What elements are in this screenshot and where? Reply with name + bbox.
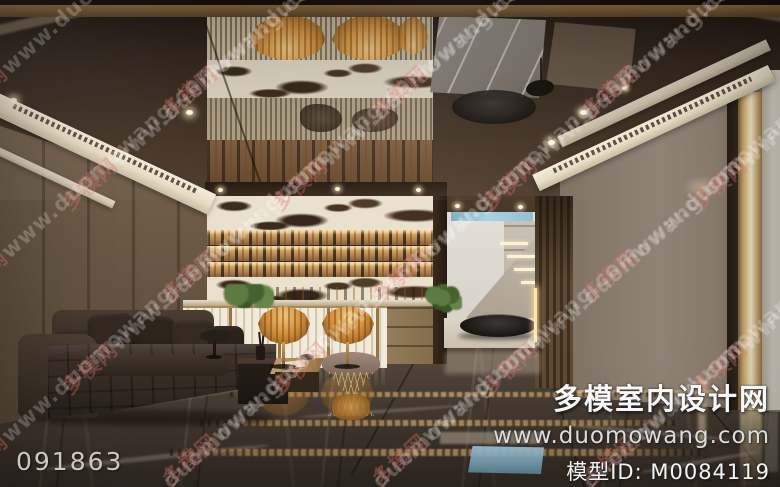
stair-step-light (507, 255, 535, 258)
ceiling-reflection-wall-patch (546, 22, 636, 92)
soffit-downlight (416, 188, 421, 192)
opening-soffit (447, 196, 537, 213)
recessed-spotlight (10, 98, 17, 103)
bar-cabinet (387, 306, 433, 364)
stair-step-light (500, 242, 528, 245)
gold-coffee-table-base (275, 372, 319, 392)
watermark-corner: 多模室内设计网 www.duomowang.com 模型ID: M0084119 (493, 376, 770, 486)
watermark-site-url: www.duomowang.com (493, 423, 770, 449)
watermark-site-name: 多模室内设计网 (493, 376, 770, 418)
soffit-downlight (218, 188, 223, 192)
recessed-spotlight (580, 110, 587, 115)
opening-plant (434, 286, 462, 316)
counter-plant (220, 284, 274, 308)
bar-marble-backsplash-upper (207, 196, 433, 230)
staircase-clerestory-window (451, 212, 533, 221)
recessed-spotlight (622, 86, 627, 90)
ceiling-reflection-decor (300, 104, 342, 132)
ceiling-reflection-black-bowl (452, 90, 536, 124)
bar-bottle-shelf (207, 230, 433, 247)
wall-wash-glow (682, 176, 722, 198)
watermark-photo-id: 091863 (16, 447, 123, 476)
opening-downlight (455, 204, 460, 208)
ceiling-reflection-pendant-rod (540, 58, 542, 84)
bar-bottle-shelf (207, 246, 433, 263)
wire-stool-amber-fill (332, 394, 370, 420)
recessed-spotlight (186, 110, 193, 115)
recessed-spotlight (548, 140, 555, 145)
ceiling-reflection-marble-band (207, 60, 433, 98)
side-table-stem (213, 341, 216, 356)
ceiling-bronze-trim (0, 5, 780, 17)
floor-opening-glow (445, 352, 541, 374)
small-bowl-on-table (300, 354, 314, 360)
ceiling-reflection-bottle-shelves (207, 140, 433, 184)
black-decor-bowl (460, 314, 536, 337)
side-table-base (206, 355, 222, 359)
interior-render-photo: 多模网www.duomowang.com多模网www.duomowang.com… (0, 0, 780, 487)
white-column (762, 70, 780, 410)
bar-stool-foot (334, 364, 360, 369)
backlit-gold-column (738, 92, 762, 410)
opening-downlight (518, 205, 523, 209)
edge-light-strip (534, 288, 537, 342)
watermark-model-id: 模型ID: M0084119 (493, 456, 770, 486)
soffit-downlight (335, 187, 340, 191)
bar-stool-foot (270, 364, 296, 369)
